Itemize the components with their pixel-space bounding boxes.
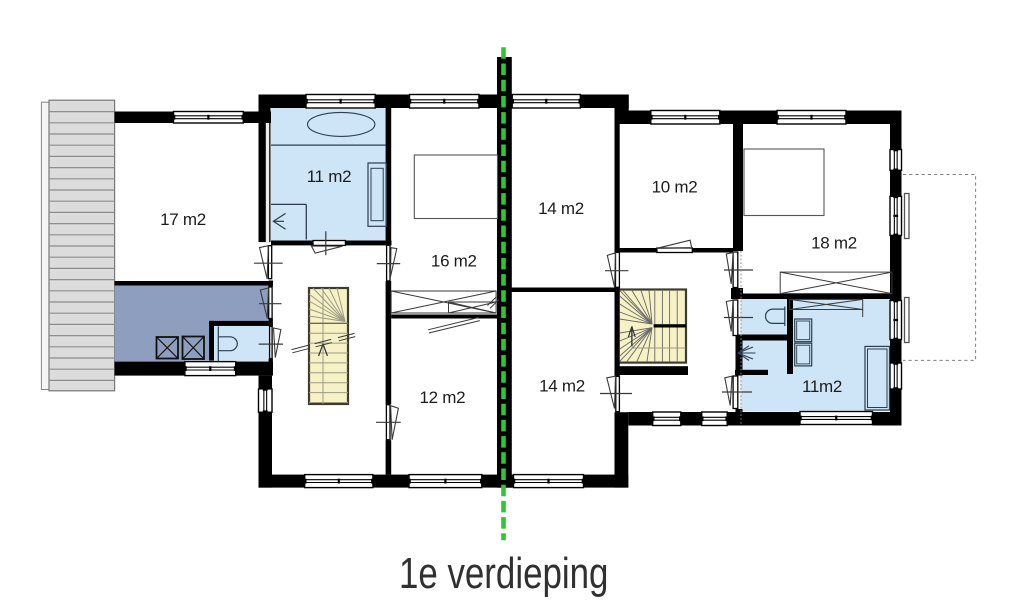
- svg-text:16 m2: 16 m2: [431, 252, 477, 271]
- svg-text:14 m2: 14 m2: [538, 199, 584, 218]
- svg-text:10 m2: 10 m2: [652, 178, 698, 197]
- svg-text:14 m2: 14 m2: [539, 377, 585, 396]
- svg-text:18 m2: 18 m2: [811, 234, 857, 253]
- svg-text:17 m2: 17 m2: [160, 210, 206, 229]
- svg-text:11m2: 11m2: [802, 377, 842, 396]
- svg-text:1e verdieping: 1e verdieping: [399, 549, 609, 598]
- svg-text:12 m2: 12 m2: [420, 388, 466, 407]
- svg-text:11 m2: 11 m2: [307, 167, 352, 186]
